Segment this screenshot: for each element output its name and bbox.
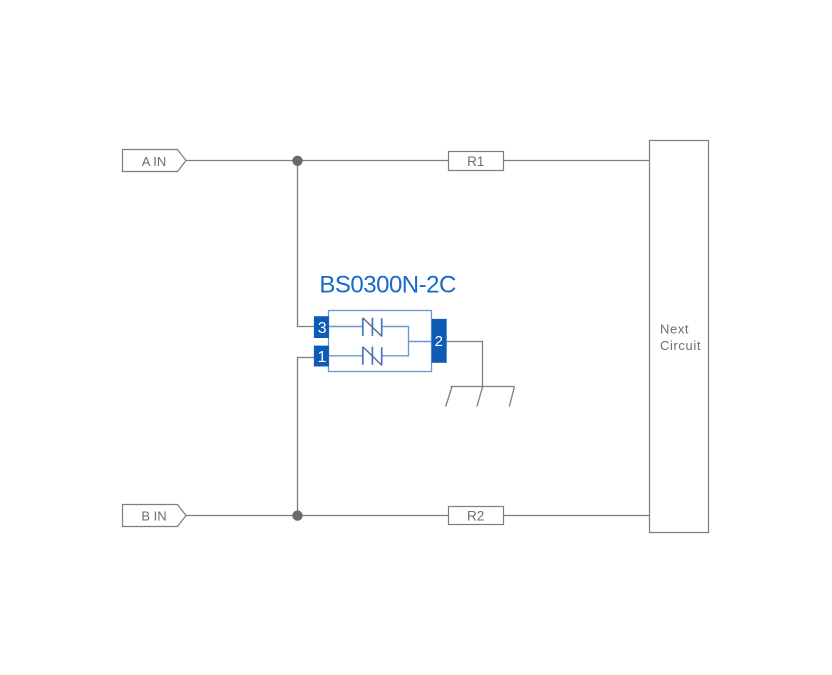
svg-text:A IN: A IN: [142, 154, 167, 169]
svg-text:R2: R2: [467, 508, 484, 523]
svg-text:BS0300N-2C: BS0300N-2C: [319, 272, 456, 299]
svg-text:B IN: B IN: [141, 509, 166, 524]
svg-text:3: 3: [318, 320, 327, 337]
svg-text:2: 2: [435, 333, 443, 350]
svg-text:1: 1: [318, 349, 327, 366]
svg-text:Next: Next: [660, 322, 689, 337]
svg-text:R1: R1: [467, 154, 484, 169]
svg-text:Circuit: Circuit: [660, 338, 701, 353]
